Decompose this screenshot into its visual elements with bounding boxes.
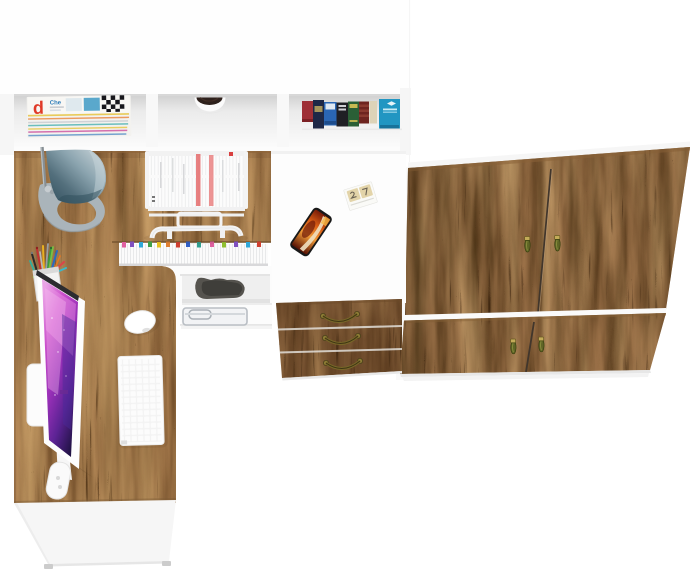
svg-text:Che: Che [50, 100, 62, 106]
